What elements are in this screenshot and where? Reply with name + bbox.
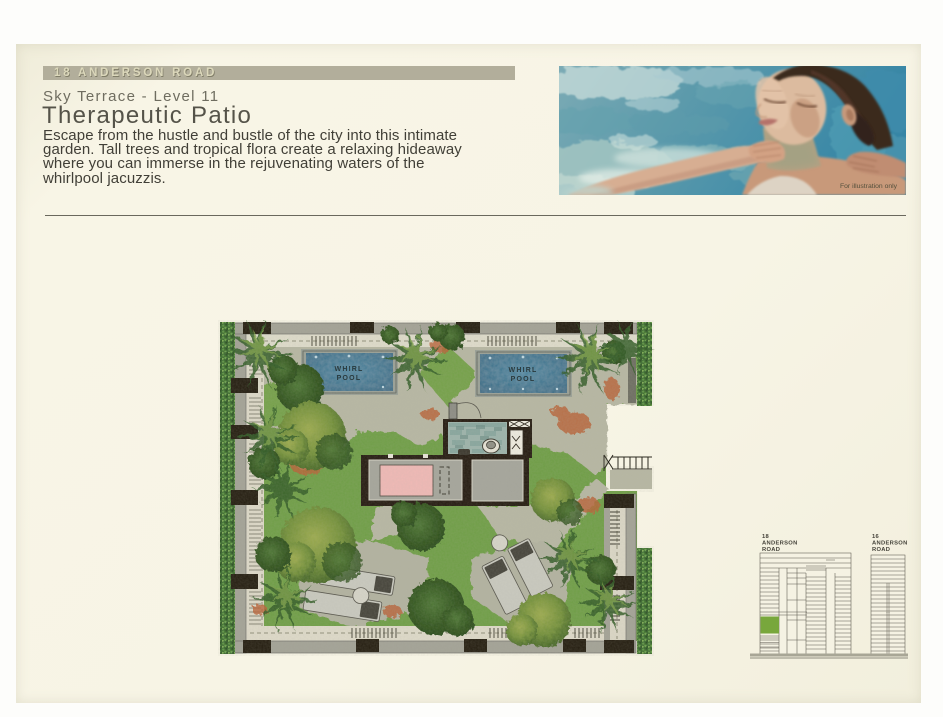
svg-text:18: 18	[762, 534, 770, 540]
svg-text:ANDERSON: ANDERSON	[762, 541, 798, 547]
svg-text:16: 16	[872, 534, 880, 540]
svg-text:ROAD: ROAD	[762, 547, 780, 553]
svg-text:For illustration only: For illustration only	[840, 183, 898, 190]
svg-text:ANDERSON: ANDERSON	[872, 541, 908, 547]
svg-text:ROAD: ROAD	[872, 547, 890, 553]
